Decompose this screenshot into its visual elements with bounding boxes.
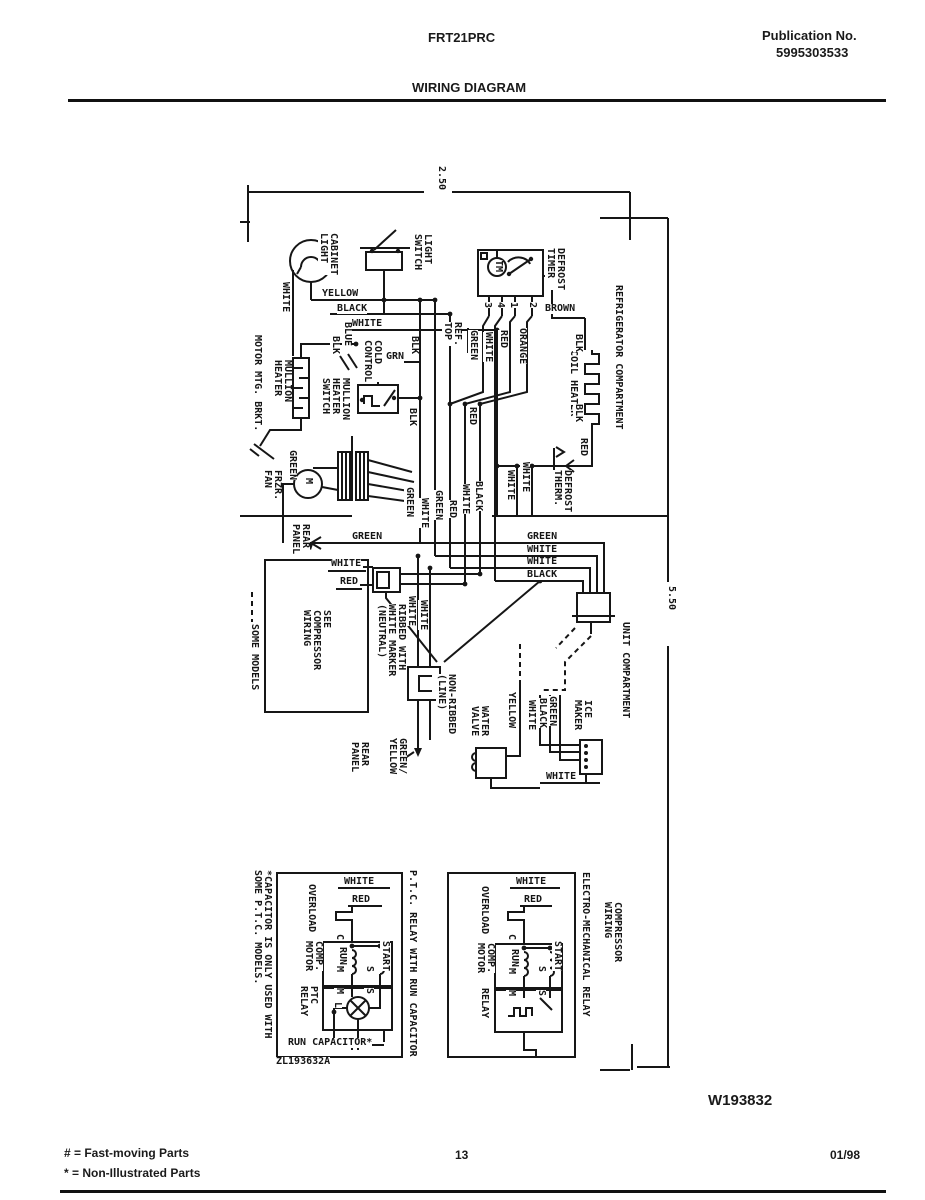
label-rear-panel-2: REAR PANEL <box>349 742 369 772</box>
label-start-ptc: START <box>380 941 390 971</box>
terminal-l-ptc: L <box>332 1002 342 1008</box>
label-overload-em: OVERLOAD <box>479 886 489 934</box>
wire-white-cord1: WHITE <box>406 596 416 626</box>
terminal-s-ptc1: S <box>364 966 374 972</box>
wire-blk-trunk-low: BLK <box>407 408 417 426</box>
wire-white-cord2: WHITE <box>418 600 428 630</box>
wire-green-icemaker: GREEN <box>547 696 557 726</box>
wire-white-cabinet: WHITE <box>280 282 290 312</box>
legend-non-illustrated: * = Non-Illustrated Parts <box>64 1166 200 1180</box>
label-water-valve: WATER VALVE <box>469 706 489 736</box>
terminal-s-em1: S <box>536 966 546 972</box>
wire-black-icemaker: BLACK <box>537 698 547 728</box>
timer-terminal-3: 3 <box>482 302 492 308</box>
legend-fast-moving: # = Fast-moving Parts <box>64 1146 189 1160</box>
wire-red-ptc: RED <box>352 895 370 905</box>
wire-brown: BROWN <box>545 304 575 314</box>
label-ptc-relay: PTC RELAY <box>298 986 318 1016</box>
wire-green-bundle2: GREEN <box>433 490 443 520</box>
fan-motor-letter: M <box>303 478 313 484</box>
label-see-compressor-wiring: SEE COMPRESSOR WIRING <box>301 610 331 670</box>
wire-red-timer: RED <box>498 330 508 348</box>
wire-white-em: WHITE <box>516 877 546 887</box>
wire-white-ptc: WHITE <box>344 877 374 887</box>
section-unit-compartment: UNIT COMPARTMENT <box>620 622 630 718</box>
wire-white-run: WHITE <box>352 319 382 329</box>
label-mullion-heater-switch: MULLION HEATER SWITCH <box>320 378 350 420</box>
terminal-m-em1: M <box>506 968 516 974</box>
label-relay-em: RELAY <box>479 988 489 1018</box>
wire-white-icemaker: WHITE <box>526 700 536 730</box>
label-run-ptc: RUN <box>337 947 347 965</box>
wire-green-run-right: GREEN <box>527 532 557 542</box>
wire-green-timer: GREEN <box>468 330 478 360</box>
wire-blk-coil-top: BLK <box>573 334 583 352</box>
note-capacitor: *CAPACITOR IS ONLY USED WITH SOME P.T.C.… <box>252 870 272 1039</box>
label-motor-mtg-brkt: MOTOR MTG. BRKT. <box>252 335 262 431</box>
label-start-em: START <box>552 941 562 971</box>
terminal-m-ptc1: M <box>334 966 344 972</box>
wire-red-em: RED <box>524 895 542 905</box>
wire-green-run-left: GREEN <box>352 532 382 542</box>
timer-terminal-2: 2 <box>527 302 537 308</box>
wire-white-bundle: WHITE <box>419 498 429 528</box>
label-overload-ptc: OVERLOAD <box>306 884 316 932</box>
label-rear-panel-1: REAR PANEL <box>290 524 310 554</box>
wire-white-timer: WHITE <box>483 332 493 362</box>
footer-rule <box>60 1190 886 1193</box>
wire-red-bundle: RED <box>447 500 457 518</box>
junction-dots <box>305 249 588 1015</box>
wire-green-yellow: GREEN/ YELLOW <box>387 738 407 774</box>
wire-blk-coil-bottom: BLK <box>573 404 583 422</box>
label-ice-maker: ICE MAKER <box>572 700 592 730</box>
wire-red-compressor: RED <box>340 577 358 587</box>
timer-terminal-1: 1 <box>508 302 518 308</box>
terminal-m-em2: M <box>506 990 516 996</box>
wire-black: BLACK <box>337 304 367 314</box>
wire-white-run-right1: WHITE <box>527 545 557 555</box>
caption-ptc-box: P.T.C. RELAY WITH RUN CAPACITOR <box>407 870 417 1057</box>
caption-em-box: ELECTRO-MECHANICAL RELAY <box>580 872 590 1017</box>
wire-red-trunk: RED <box>467 407 477 425</box>
wire-black-bundle: BLACK <box>473 481 483 511</box>
label-timer-motor: TM <box>493 260 503 272</box>
terminal-s-ptc2: S <box>364 988 374 994</box>
label-defrost-timer: DEFROST TIMER <box>545 248 565 290</box>
wire-blk-blue: BLK <box>330 336 340 354</box>
water-valve-symbol <box>472 748 506 778</box>
wire-grn: GRN <box>386 352 404 362</box>
wire-white-run-right2: WHITE <box>527 557 557 567</box>
terminal-c-ptc: C <box>334 934 344 940</box>
wire-green-bundle: GREEN <box>404 487 414 517</box>
terminal-m-ptc2: M <box>334 988 344 994</box>
label-frzr-fan: FRZR. FAN <box>262 470 282 500</box>
dimension-side: 5.50 <box>666 586 676 610</box>
wire-white-therm1: WHITE <box>505 470 515 500</box>
wire-blue: BLUE <box>342 322 352 346</box>
label-comp-motor-ptc: COMP. MOTOR <box>303 941 323 971</box>
wire-yellow: YELLOW <box>322 289 358 299</box>
wire-yellow-valve: YELLOW <box>506 692 516 728</box>
wire-red-coil: RED <box>578 438 588 456</box>
date: 01/98 <box>830 1148 860 1162</box>
label-non-ribbed-line: NON-RIBBED (LINE) <box>436 674 456 734</box>
wire-orange-timer: ORANGE <box>517 328 527 364</box>
page-number: 13 <box>455 1148 468 1162</box>
doc-number: W193832 <box>708 1092 772 1109</box>
wire-blk-trunk-top: BLK <box>409 336 419 354</box>
section-refrigerator-compartment: REFRIGERATOR COMPARTMENT <box>613 285 623 430</box>
label-defrost-therm: DEFROST THERM. <box>552 470 572 512</box>
terminal-c-em: C <box>506 934 516 940</box>
unit-connector-symbol <box>572 593 615 634</box>
terminal-s-em2: S <box>536 990 546 996</box>
label-cabinet-light: CABINET LIGHT <box>318 233 338 275</box>
label-comp-motor-em: COMP. MOTOR <box>475 943 495 973</box>
wire-white-compressor: WHITE <box>331 559 361 569</box>
label-ref-top: REF. TOP <box>442 322 462 346</box>
wire-white-bundle2: WHITE <box>460 484 470 514</box>
wire-white-therm2: WHITE <box>520 462 530 492</box>
label-ribbed-neutral: RIBBED WITH WHITE MARKER (NEUTRAL) <box>376 604 406 676</box>
label-mullion-heater: MULLION HEATER <box>272 360 292 402</box>
wire-white-icemaker-bottom: WHITE <box>546 772 576 782</box>
label-compressor-wiring: COMPRESSOR WIRING <box>602 902 622 962</box>
dimension-top: 2.50 <box>436 166 446 190</box>
label-run-em: RUN <box>509 949 519 967</box>
wire-green-fan: GREEN <box>287 450 297 480</box>
wire-black-run-right: BLACK <box>527 570 557 580</box>
wiring-diagram-svg <box>0 0 925 1200</box>
label-some-models: SOME MODELS <box>249 624 259 690</box>
label-light-switch: LIGHT SWITCH <box>412 234 432 270</box>
light-switch-symbol <box>360 230 410 270</box>
timer-terminal-4: 4 <box>495 302 505 308</box>
ice-maker-connector-symbol <box>580 740 602 774</box>
label-diagram-code: ZL193632A <box>276 1057 330 1067</box>
label-run-capacitor: RUN CAPACITOR* <box>288 1038 372 1048</box>
label-cold-control: COLD CONTROL <box>362 340 382 382</box>
harness-connector-symbol <box>338 436 414 502</box>
manual-page: FRT21PRC Publication No. 5995303533 WIRI… <box>0 0 925 1200</box>
